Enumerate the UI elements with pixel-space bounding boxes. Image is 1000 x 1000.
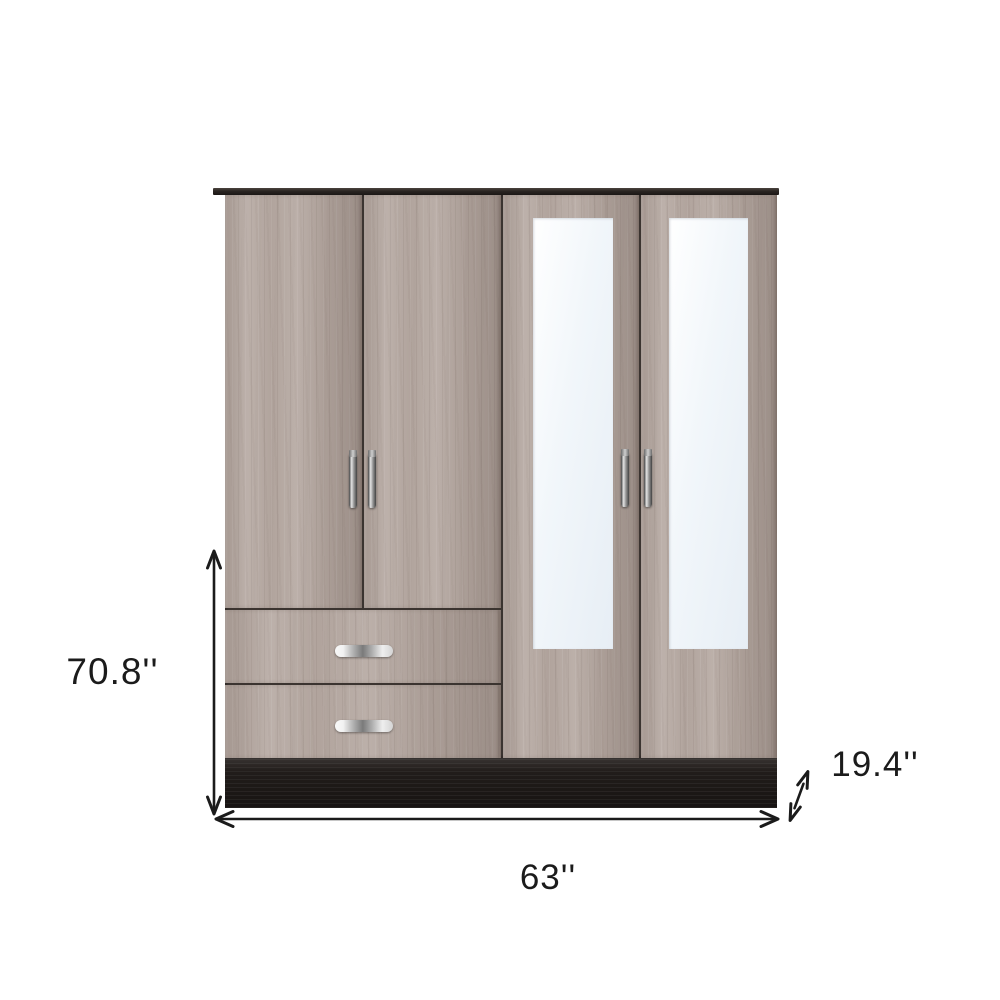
- wardrobe-door-1: [225, 195, 362, 608]
- depth-dimension-label: 19.4'': [795, 747, 955, 782]
- drawer-1-handle: [335, 645, 393, 657]
- product-image-canvas: 70.8'' 63'' 19.4'': [0, 0, 1000, 1000]
- wardrobe-body: [225, 195, 777, 758]
- door-4-handle: [644, 452, 652, 507]
- door-3-handle: [621, 452, 629, 507]
- door-1-handle: [349, 453, 357, 508]
- drawer-2-handle: [335, 720, 393, 732]
- wardrobe-top-trim: [213, 188, 779, 195]
- width-dimension-arrow: [216, 812, 778, 827]
- wardrobe-door-2: [364, 195, 501, 608]
- wardrobe-door-3: [503, 195, 639, 758]
- mirror-panel-2: [669, 218, 748, 649]
- height-dimension-arrow: [208, 551, 221, 814]
- door-2-handle: [368, 453, 376, 508]
- height-dimension-label: 70.8'': [30, 653, 195, 690]
- wardrobe-base-plinth: [225, 758, 777, 808]
- mirror-panel-1: [533, 218, 613, 649]
- wardrobe-door-4: [641, 195, 777, 758]
- width-dimension-label: 63'': [468, 860, 628, 895]
